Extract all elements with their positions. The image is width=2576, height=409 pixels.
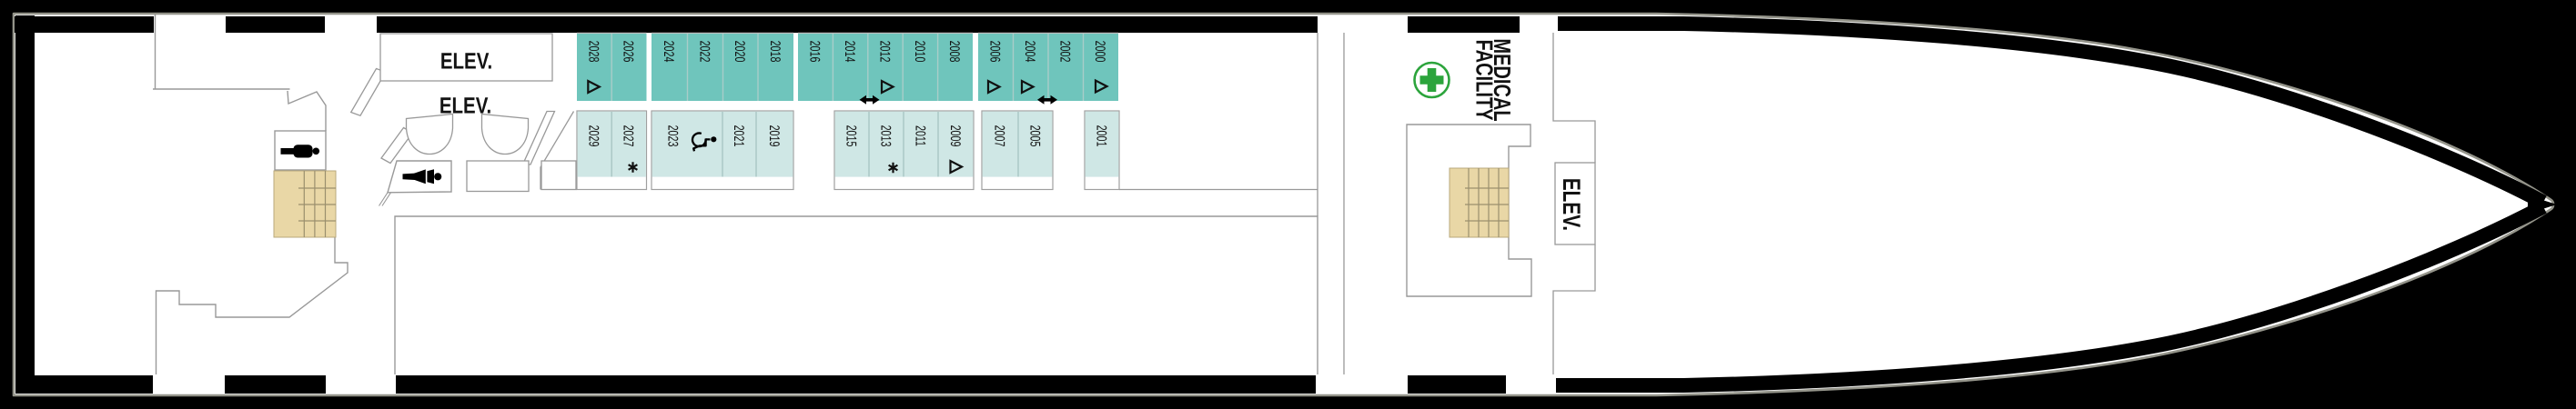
svg-text:2012: 2012 [876, 41, 892, 63]
svg-text:FACILITY: FACILITY [1471, 40, 1499, 121]
svg-text:2006: 2006 [987, 41, 1003, 63]
svg-text:2022: 2022 [696, 41, 712, 63]
svg-text:2015: 2015 [843, 125, 858, 147]
svg-text:2018: 2018 [767, 41, 783, 63]
svg-text:2001: 2001 [1093, 125, 1108, 147]
svg-text:2023: 2023 [664, 125, 680, 147]
svg-text:2021: 2021 [731, 125, 746, 147]
svg-text:2011: 2011 [912, 125, 927, 146]
svg-text:2004: 2004 [1022, 41, 1037, 63]
svg-text:2020: 2020 [732, 41, 747, 63]
svg-text:2002: 2002 [1057, 41, 1073, 63]
svg-text:2024: 2024 [661, 41, 676, 63]
svg-text:2014: 2014 [842, 41, 857, 63]
svg-text:2027: 2027 [621, 125, 636, 147]
svg-text:2000: 2000 [1092, 41, 1107, 63]
svg-text:2028: 2028 [585, 41, 601, 63]
svg-text:ELEV.: ELEV. [1558, 178, 1585, 231]
svg-text:2008: 2008 [946, 41, 962, 63]
svg-text:2016: 2016 [807, 41, 823, 63]
svg-text:2013: 2013 [877, 125, 893, 147]
svg-text:2005: 2005 [1026, 125, 1042, 147]
svg-text:2026: 2026 [621, 41, 636, 63]
svg-text:2009: 2009 [947, 125, 963, 147]
svg-text:ELEV.: ELEV. [440, 49, 492, 75]
svg-text:2010: 2010 [912, 41, 927, 63]
svg-text:2019: 2019 [766, 125, 782, 147]
svg-text:2029: 2029 [585, 125, 601, 147]
svg-text:2007: 2007 [991, 125, 1006, 147]
